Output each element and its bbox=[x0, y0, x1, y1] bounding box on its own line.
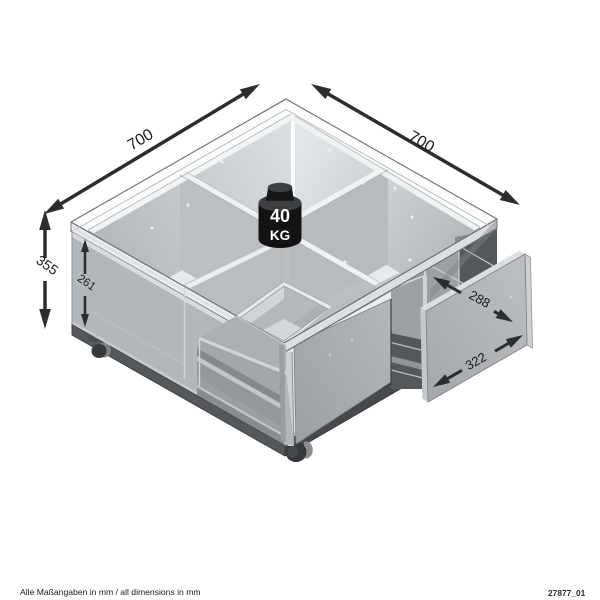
svg-text:KG: KG bbox=[270, 228, 290, 243]
svg-text:Alle Maßangaben in mm / all di: Alle Maßangaben in mm / all dimensions i… bbox=[20, 587, 201, 597]
svg-text:40: 40 bbox=[270, 206, 290, 226]
svg-text:27877_01: 27877_01 bbox=[548, 588, 586, 598]
